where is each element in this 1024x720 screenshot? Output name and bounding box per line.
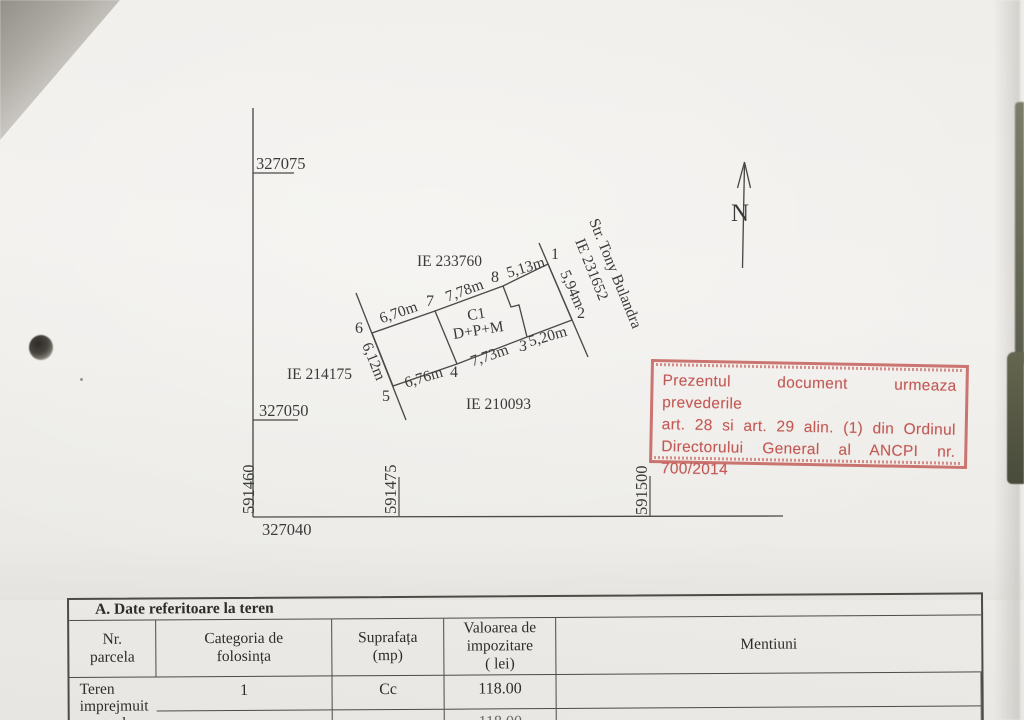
neighbor-ie-label-west: IE 214175 bbox=[287, 366, 352, 383]
coord-label-north-top: 327075 bbox=[256, 154, 306, 173]
ancpi-stamp: Prezentul document urmeaza prevederile a… bbox=[649, 359, 969, 469]
dimension-label: 5,94m bbox=[556, 268, 587, 311]
point-label: 7 bbox=[426, 293, 434, 310]
point-label: 1 bbox=[551, 246, 559, 263]
cell-valoarea bbox=[557, 706, 982, 720]
column-header-mentiuni: Mentiuni bbox=[556, 615, 981, 675]
land-data-table: A. Date referitoare la teren Nr. parcela… bbox=[67, 592, 984, 720]
column-header-valoarea: Valoarea de impozitare ( lei) bbox=[444, 618, 556, 676]
axis-horizontal-line bbox=[253, 516, 783, 517]
column-header-suprafata: Suprafața (mp) bbox=[332, 619, 444, 677]
cell-suprafata-total: 118.00 bbox=[445, 709, 557, 720]
dimension-label: 7,78m bbox=[443, 276, 486, 305]
neighbor-ie-label-south: IE 210093 bbox=[466, 396, 531, 413]
dimension-label: 5,13m bbox=[504, 254, 546, 282]
dimension-label: 5,20m bbox=[527, 323, 569, 350]
column-header-categoria: Categoria de folosința bbox=[156, 619, 332, 677]
cell-nr-parcela bbox=[157, 710, 333, 720]
neighbor-ie-label-north: IE 233760 bbox=[417, 253, 482, 270]
coord-label-north-mid: 327050 bbox=[259, 401, 309, 420]
dimension-label: 6,12m bbox=[358, 340, 388, 383]
point-label: 4 bbox=[450, 364, 458, 381]
point-label: 6 bbox=[355, 320, 363, 337]
point-label: 3 bbox=[519, 338, 527, 355]
cell-nr-parcela: 1 bbox=[156, 676, 332, 711]
column-header-nr-parcela: Nr. parcela bbox=[69, 620, 156, 678]
building-east-wall bbox=[503, 286, 527, 337]
coord-label-east-mid: 591475 bbox=[381, 465, 400, 515]
coord-label-east-left: 591460 bbox=[239, 465, 258, 515]
cell-suprafata: 118.00 bbox=[444, 675, 556, 710]
building-regime-label: D+P+M bbox=[452, 318, 505, 343]
dimension-label: 6,70m bbox=[377, 298, 420, 327]
cell-mentiuni: Teren imprejmuit cu gard tabla intre 1-2… bbox=[69, 677, 156, 720]
cell-valoarea bbox=[556, 672, 981, 709]
coord-label-east-right: 591500 bbox=[632, 466, 651, 516]
scanned-cadastral-document: 327075 327050 327040 591460 591475 59150… bbox=[0, 0, 1024, 720]
dimension-label: 6,76m bbox=[402, 364, 444, 392]
coord-label-north-bottom: 327040 bbox=[262, 520, 312, 539]
stamp-text-line: Directorului General al ANCPI nr. bbox=[661, 436, 955, 464]
dimension-label: 7,73m bbox=[468, 341, 511, 370]
point-label: 8 bbox=[491, 269, 499, 286]
point-label: 5 bbox=[382, 388, 390, 405]
cell-categoria bbox=[333, 710, 445, 720]
north-letter: N bbox=[731, 200, 749, 227]
cell-categoria: Cc bbox=[332, 676, 444, 711]
stamp-text-line: Prezentul document urmeaza prevederile bbox=[662, 370, 957, 420]
